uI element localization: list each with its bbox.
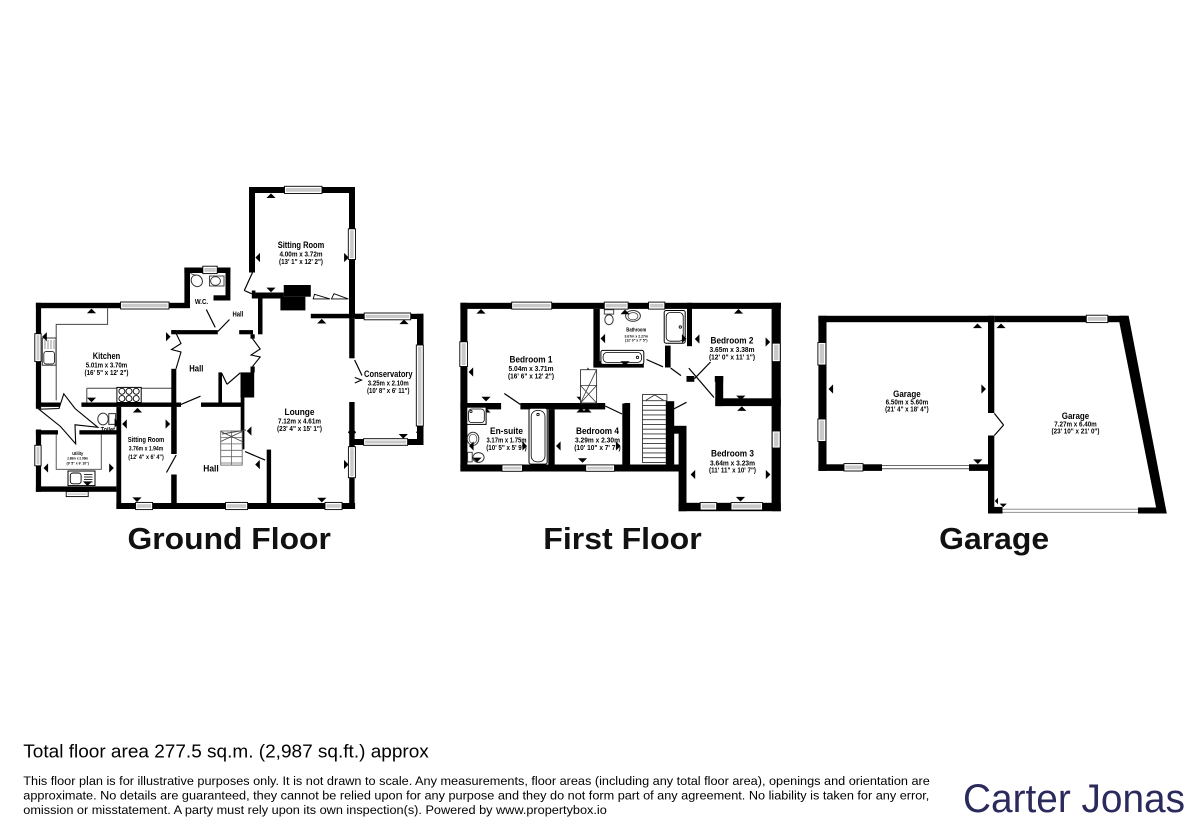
svg-text:This floor plan is for illustr: This floor plan is for illustrative purp… [23, 774, 930, 788]
svg-text:Bedroom 2: Bedroom 2 [711, 336, 754, 346]
svg-text:3.65m x 3.38m: 3.65m x 3.38m [710, 347, 755, 354]
svg-text:(10' 8" x 6' 11"): (10' 8" x 6' 11") [367, 388, 410, 395]
svg-text:Garage: Garage [893, 389, 921, 399]
svg-text:Bedroom 1: Bedroom 1 [510, 355, 553, 365]
svg-text:6.50m x 5.60m: 6.50m x 5.60m [886, 399, 929, 406]
svg-text:(9' 5" x 6' 10"): (9' 5" x 6' 10") [66, 461, 89, 466]
svg-text:Ground Floor: Ground Floor [128, 521, 331, 556]
svg-text:Sitting Room: Sitting Room [128, 435, 165, 444]
svg-text:(13' 1" x 12' 2"): (13' 1" x 12' 2") [279, 259, 323, 266]
svg-text:4.00m x 3.72m: 4.00m x 3.72m [280, 252, 323, 259]
svg-text:omission or misstatement. A pa: omission or misstatement. A party must r… [23, 803, 607, 817]
svg-text:Toilet: Toilet [101, 427, 115, 434]
svg-text:(12' 0" x 7' 5"): (12' 0" x 7' 5") [625, 338, 648, 343]
svg-text:3.17m x 1.75m: 3.17m x 1.75m [487, 438, 527, 445]
svg-text:En-suite: En-suite [490, 426, 523, 436]
svg-text:5.04m x 3.71m: 5.04m x 3.71m [509, 366, 554, 373]
svg-text:(12' 0" x 11' 1"): (12' 0" x 11' 1") [709, 355, 755, 362]
svg-text:Garage: Garage [939, 521, 1049, 556]
svg-text:(16' 5" x 12' 2"): (16' 5" x 12' 2") [85, 370, 129, 377]
svg-text:(23' 4" x 15' 1"): (23' 4" x 15' 1") [277, 426, 322, 433]
svg-text:(16' 6" x 12' 2"): (16' 6" x 12' 2") [508, 374, 554, 381]
svg-text:(10' 5" x 5' 9"): (10' 5" x 5' 9") [486, 445, 527, 452]
svg-text:(21' 4" x 18' 4"): (21' 4" x 18' 4") [885, 406, 929, 413]
svg-text:First Floor: First Floor [543, 521, 701, 556]
svg-text:3.64m x 3.23m: 3.64m x 3.23m [710, 460, 755, 467]
svg-text:(10' 10" x 7' 7"): (10' 10" x 7' 7") [574, 445, 621, 452]
svg-text:Hall: Hall [233, 312, 244, 319]
svg-text:Kitchen: Kitchen [93, 351, 121, 361]
svg-text:Garage: Garage [1062, 411, 1090, 421]
svg-text:3.76m x 1.94m: 3.76m x 1.94m [129, 446, 164, 453]
svg-text:Lounge: Lounge [285, 407, 315, 417]
svg-text:3.29m x 2.30m: 3.29m x 2.30m [575, 438, 620, 445]
svg-text:Hall: Hall [203, 464, 219, 474]
svg-text:(23' 10" x 21' 0"): (23' 10" x 21' 0") [1052, 428, 1100, 435]
svg-text:Bedroom 4: Bedroom 4 [576, 426, 619, 436]
svg-text:Total floor area 277.5 sq.m. (: Total floor area 277.5 sq.m. (2,987 sq.f… [23, 741, 429, 761]
svg-text:5.01m x 3.70m: 5.01m x 3.70m [86, 362, 128, 369]
svg-text:Sitting Room: Sitting Room [278, 240, 325, 250]
svg-text:(12' 4" x 6' 4"): (12' 4" x 6' 4") [128, 454, 164, 461]
svg-text:W.C.: W.C. [195, 299, 208, 306]
svg-text:Carter Jonas: Carter Jonas [963, 777, 1185, 821]
svg-text:(11' 11" x 10' 7"): (11' 11" x 10' 7") [709, 468, 756, 475]
svg-text:7.12m x 4.61m: 7.12m x 4.61m [278, 419, 321, 426]
svg-text:Bedroom 3: Bedroom 3 [711, 449, 754, 459]
svg-text:approximate. No details are gu: approximate. No details are guaranteed, … [23, 789, 929, 803]
svg-text:7.27m x 6.40m: 7.27m x 6.40m [1054, 421, 1097, 428]
svg-text:3.25m x 2.10m: 3.25m x 2.10m [368, 381, 409, 388]
svg-text:Hall: Hall [189, 363, 203, 373]
svg-text:Conservatory: Conservatory [364, 369, 413, 379]
